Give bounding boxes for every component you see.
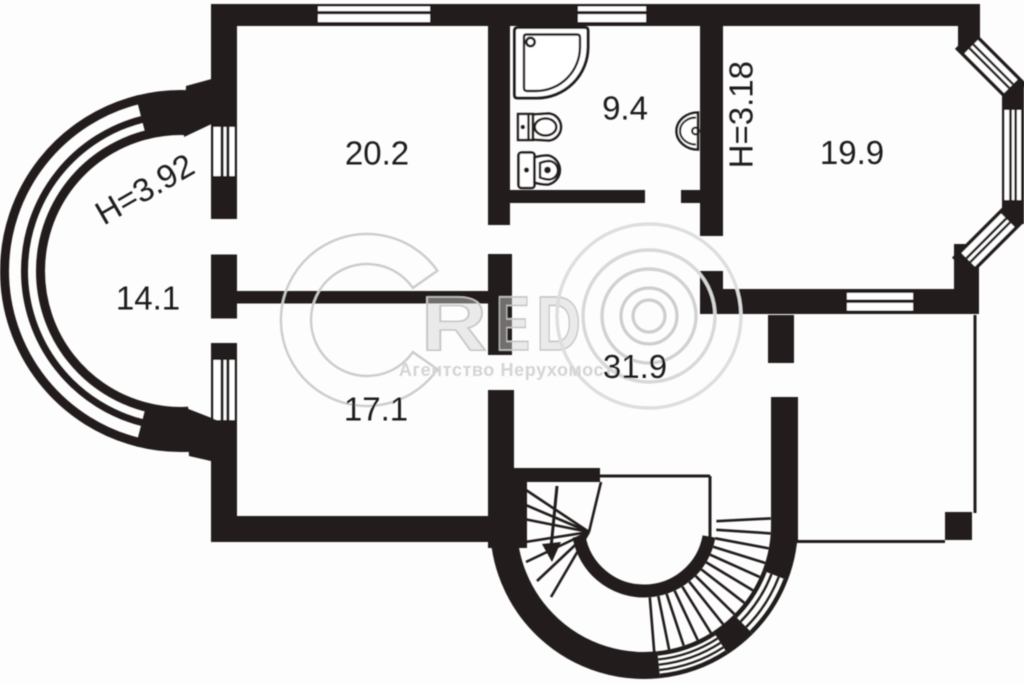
svg-text:R: R bbox=[421, 281, 487, 367]
svg-text:9.4: 9.4 bbox=[602, 90, 648, 127]
svg-text:19.9: 19.9 bbox=[820, 134, 884, 171]
svg-text:E: E bbox=[496, 281, 530, 367]
svg-text:H=3.18: H=3.18 bbox=[723, 61, 760, 168]
svg-text:20.2: 20.2 bbox=[345, 135, 409, 172]
svg-text:31.9: 31.9 bbox=[603, 348, 667, 385]
svg-text:14.1: 14.1 bbox=[116, 280, 180, 317]
svg-text:17.1: 17.1 bbox=[344, 391, 408, 428]
svg-text:Агентство Нерухомості: Агентство Нерухомості bbox=[399, 360, 619, 380]
